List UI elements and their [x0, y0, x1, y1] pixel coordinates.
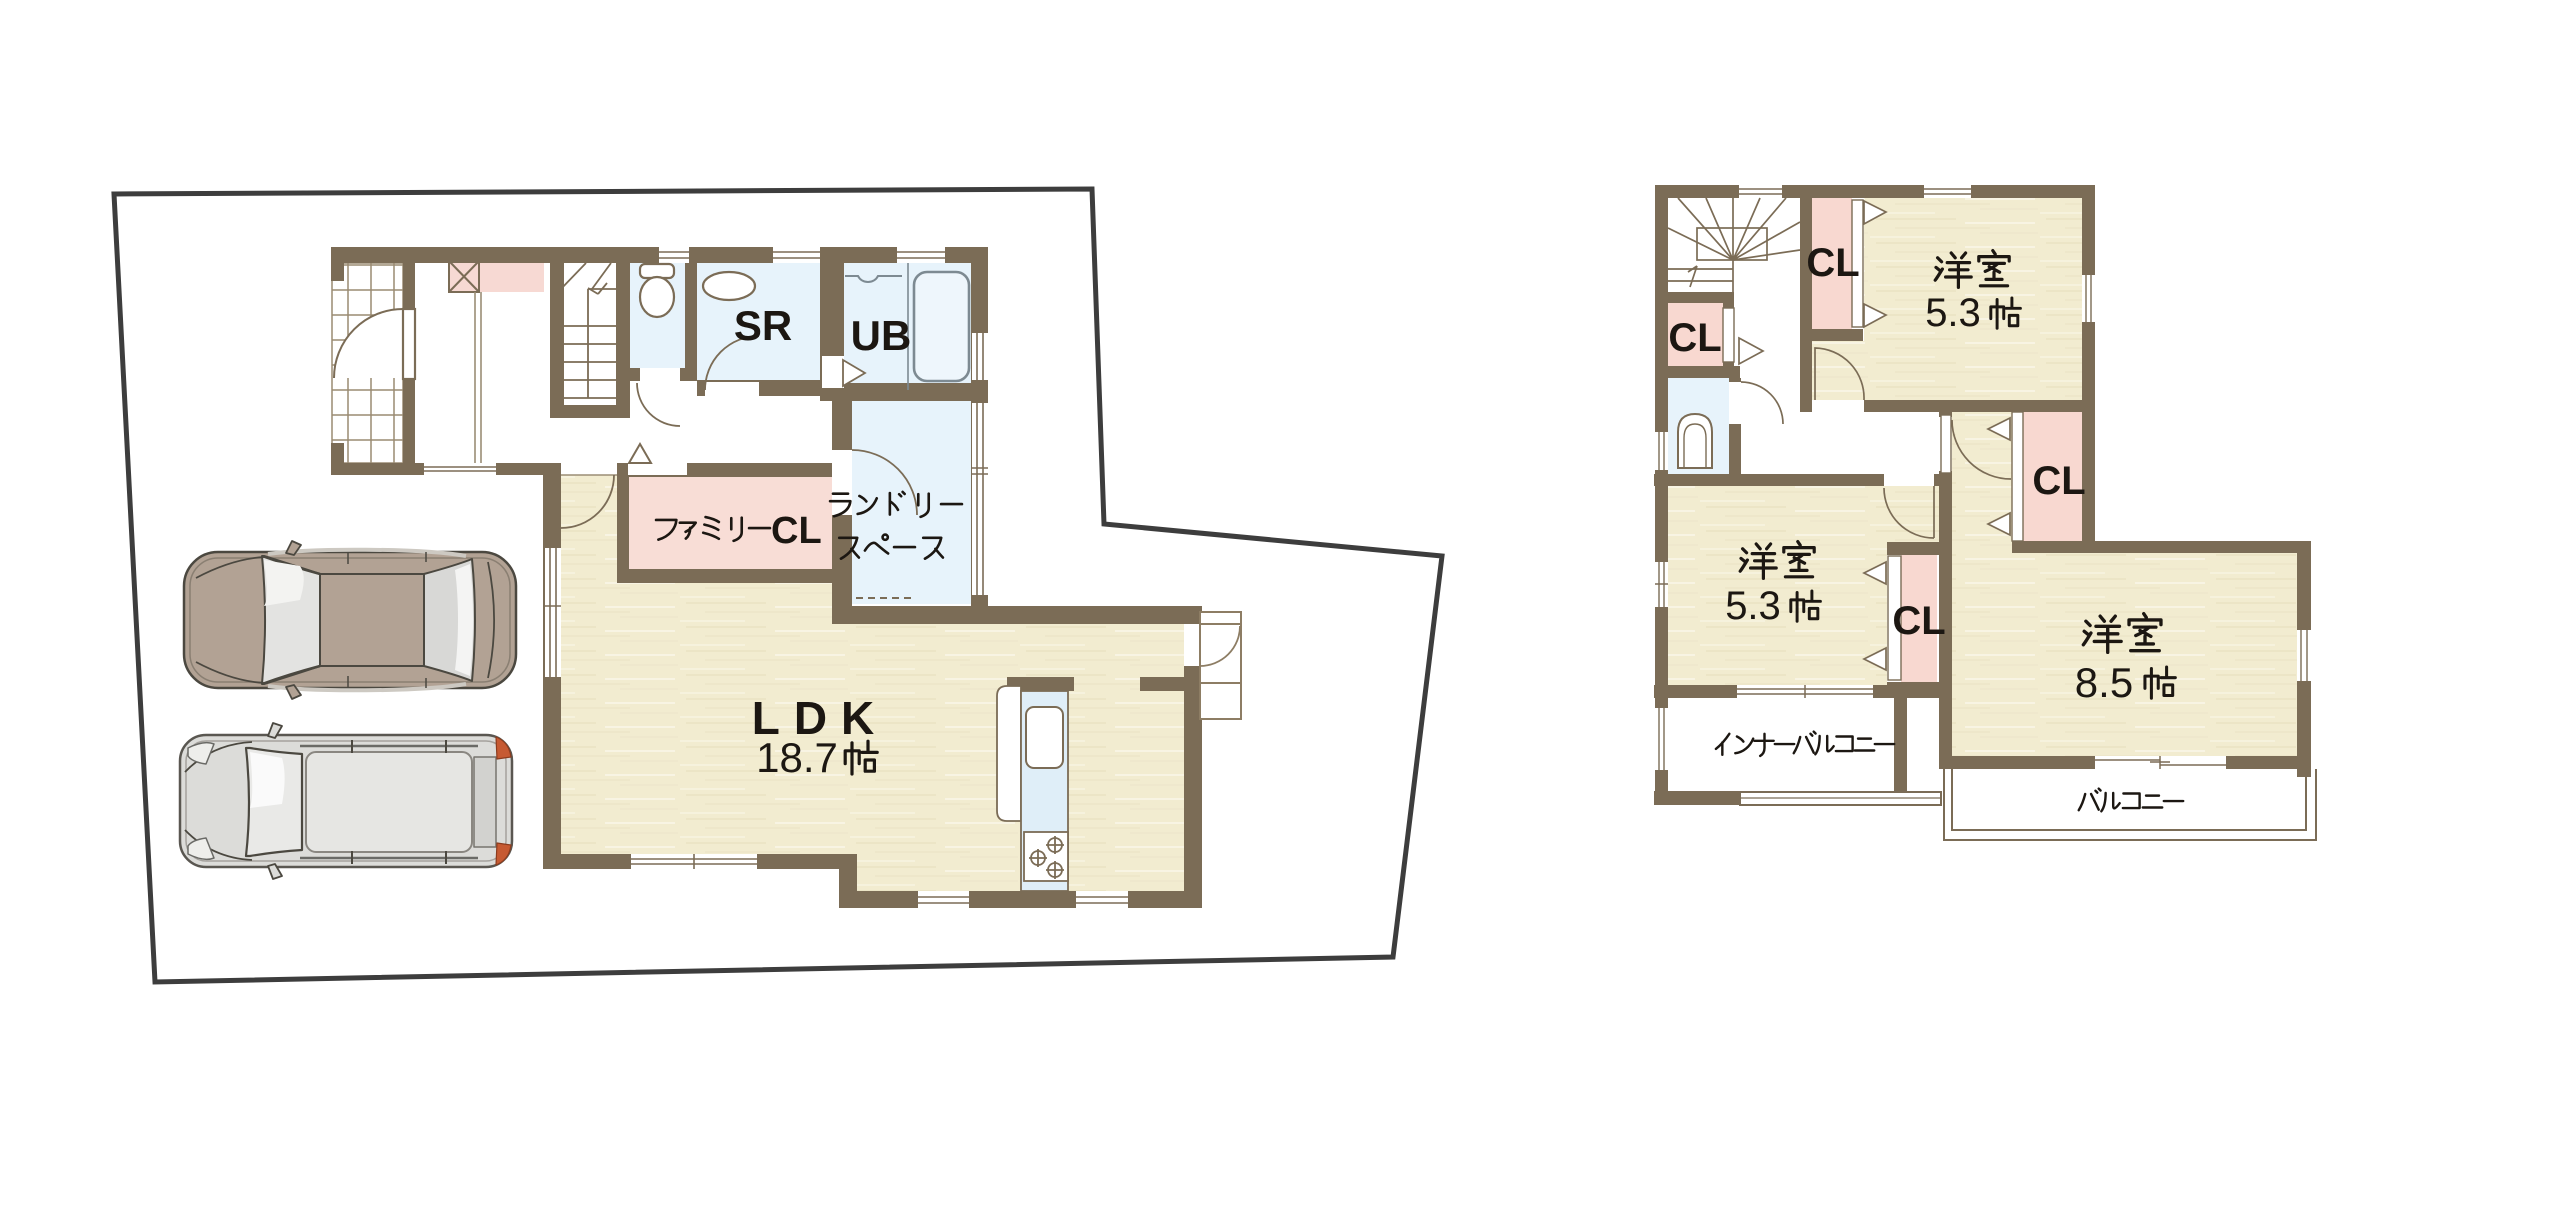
- svg-text:5.3: 5.3: [1925, 291, 1981, 335]
- svg-text:CL: CL: [1668, 316, 1721, 360]
- svg-text:SR: SR: [734, 302, 792, 349]
- svg-text:5.3: 5.3: [1725, 584, 1781, 628]
- svg-text:UB: UB: [851, 312, 912, 359]
- svg-text:CL: CL: [2032, 459, 2085, 503]
- svg-text:CL: CL: [1892, 599, 1945, 643]
- svg-text:8.5: 8.5: [2075, 659, 2133, 706]
- svg-text:CL: CL: [1806, 241, 1859, 285]
- svg-text:18.7: 18.7: [756, 734, 838, 781]
- svg-text:CL: CL: [771, 510, 822, 552]
